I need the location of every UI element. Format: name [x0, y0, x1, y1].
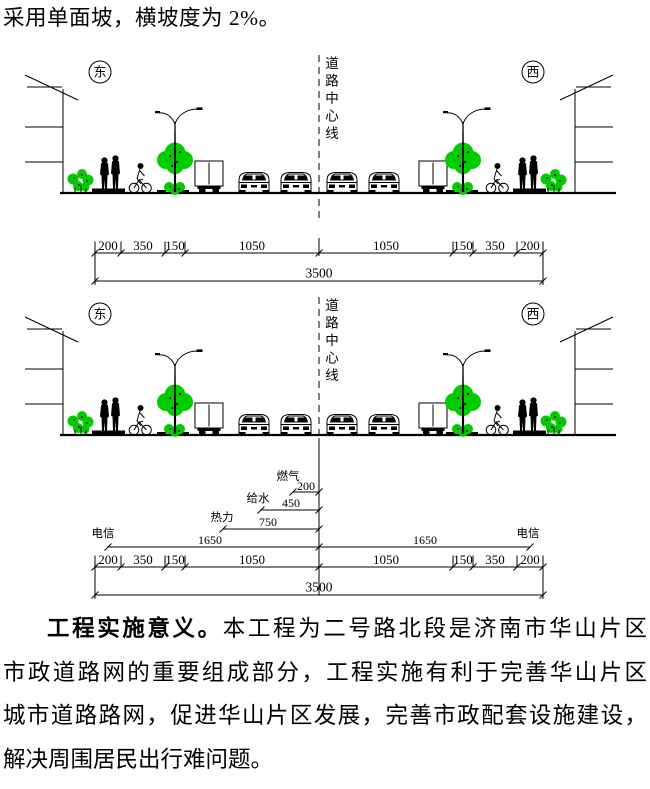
cross-section-diagram-1: [25, 55, 616, 285]
heat-label: 热力: [211, 511, 234, 524]
heat-value: 750: [259, 515, 277, 529]
cross-section-diagram-2: 燃气 200 给水 450 热力 750 电信 1650: [25, 297, 616, 599]
gas-label: 燃气: [277, 469, 300, 483]
paragraph-line-2: 市政道路网的重要组成部分，工程实施有利于完善华山片区: [3, 651, 647, 695]
road-cross-section-figures: 东 西 道 路 中 心 线: [0, 0, 650, 600]
intro-text: 采用单面坡，横坡度为 2%。: [3, 1, 281, 32]
paragraph-lead-bold: 工程实施意义。: [47, 616, 223, 641]
gas-value: 200: [297, 479, 315, 493]
telecom-left-value: 1650: [198, 533, 222, 547]
telecom-right-label: 电信: [517, 527, 540, 540]
paragraph-line-3: 城市道路路网，促进华山片区发展，完善市政配套设施建设，: [3, 694, 647, 738]
water-label: 给水: [247, 492, 270, 505]
paragraph-line-4: 解决周围居民出行难问题。: [3, 738, 647, 782]
body-paragraph: 工程实施意义。本工程为二号路北段是济南市华山片区 市政道路网的重要组成部分，工程…: [3, 607, 647, 781]
telecom-right-value: 1650: [413, 533, 437, 547]
water-value: 450: [282, 496, 300, 510]
telecom-left-label: 电信: [92, 527, 115, 540]
document-page: 采用单面坡，横坡度为 2%。: [0, 0, 650, 789]
utility-dimensions: 燃气 200 给水 450 热力 750 电信 1650: [92, 438, 540, 595]
paragraph-line-1: 工程实施意义。本工程为二号路北段是济南市华山片区: [3, 607, 647, 651]
